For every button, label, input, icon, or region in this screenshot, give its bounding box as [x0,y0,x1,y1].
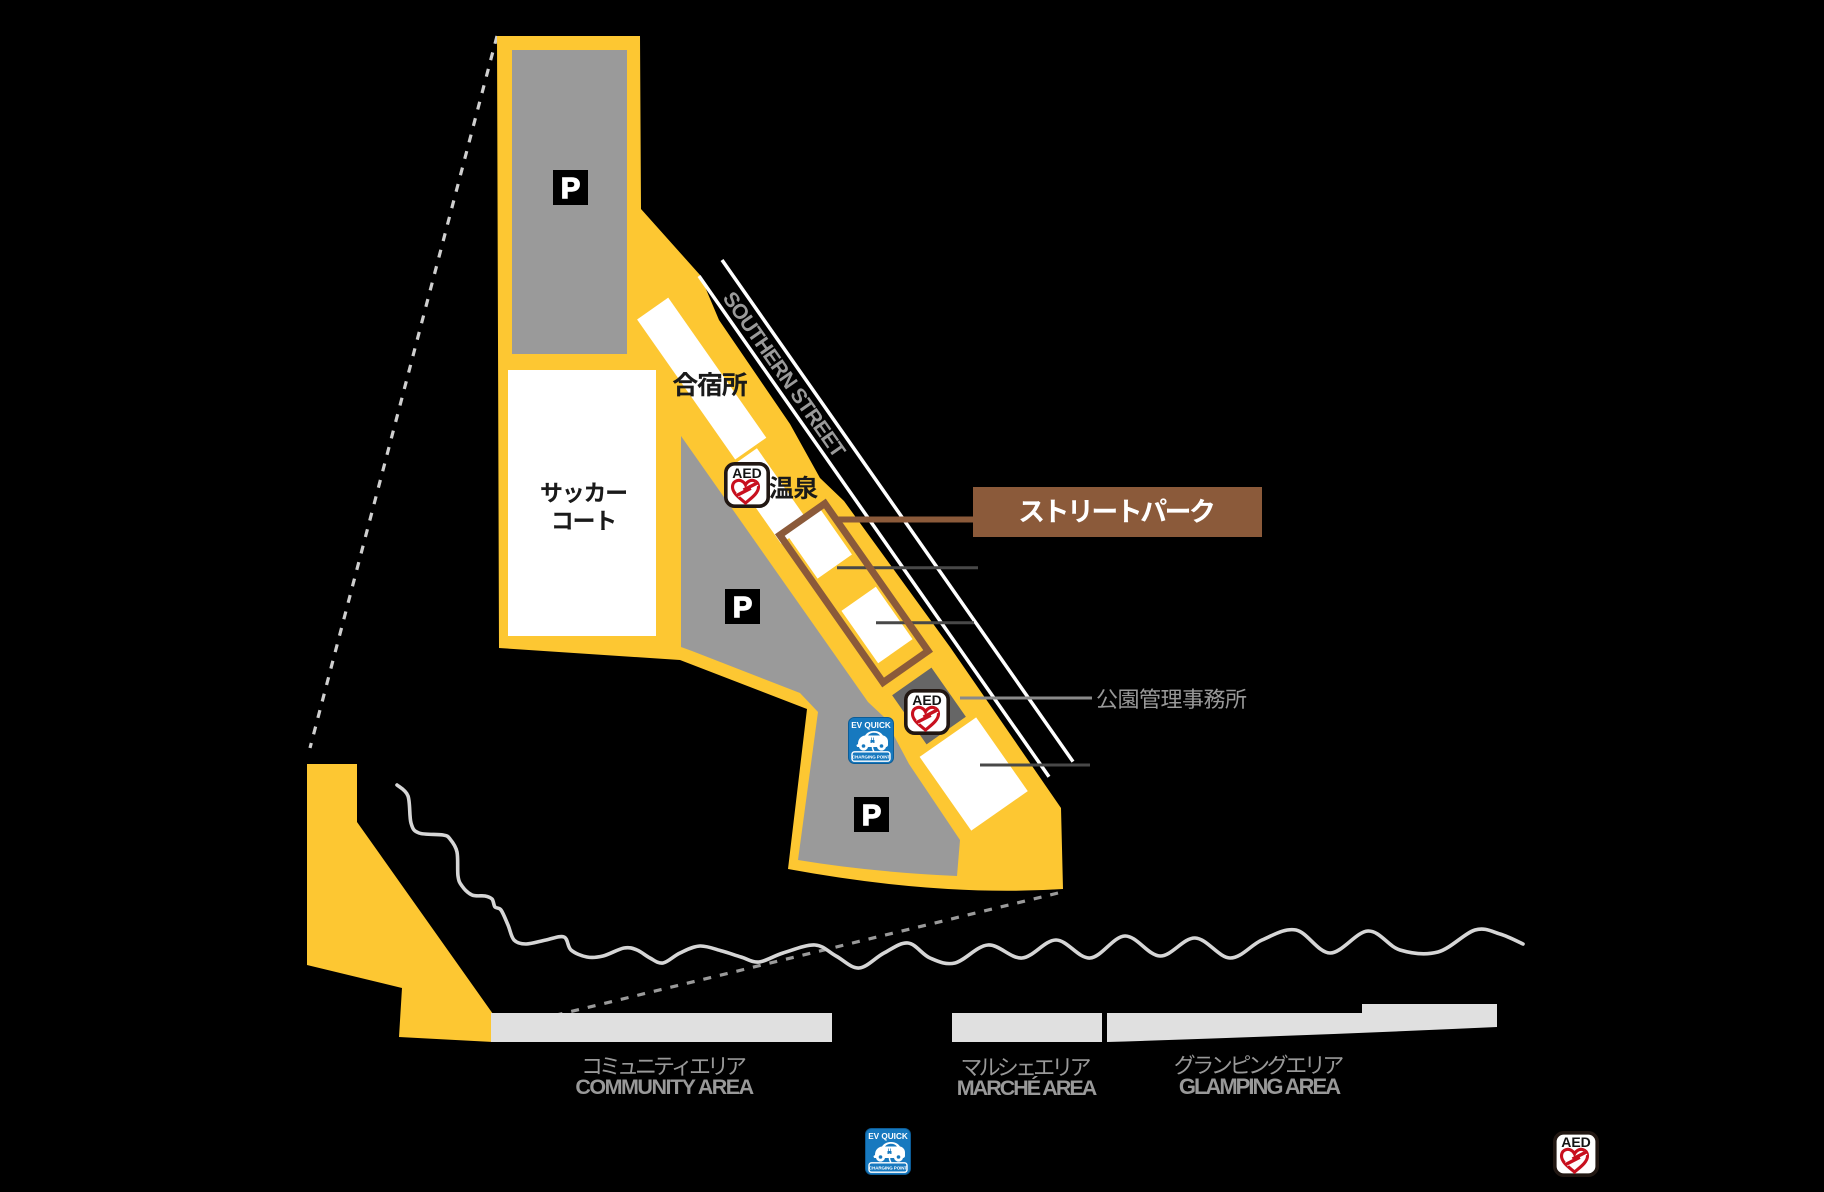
svg-text:COMMUNITY AREA: COMMUNITY AREA [575,1075,753,1099]
svg-text:MARCHÉ AREA: MARCHÉ AREA [957,1075,1097,1100]
svg-text:GLAMPING AREA: GLAMPING AREA [1179,1074,1341,1099]
